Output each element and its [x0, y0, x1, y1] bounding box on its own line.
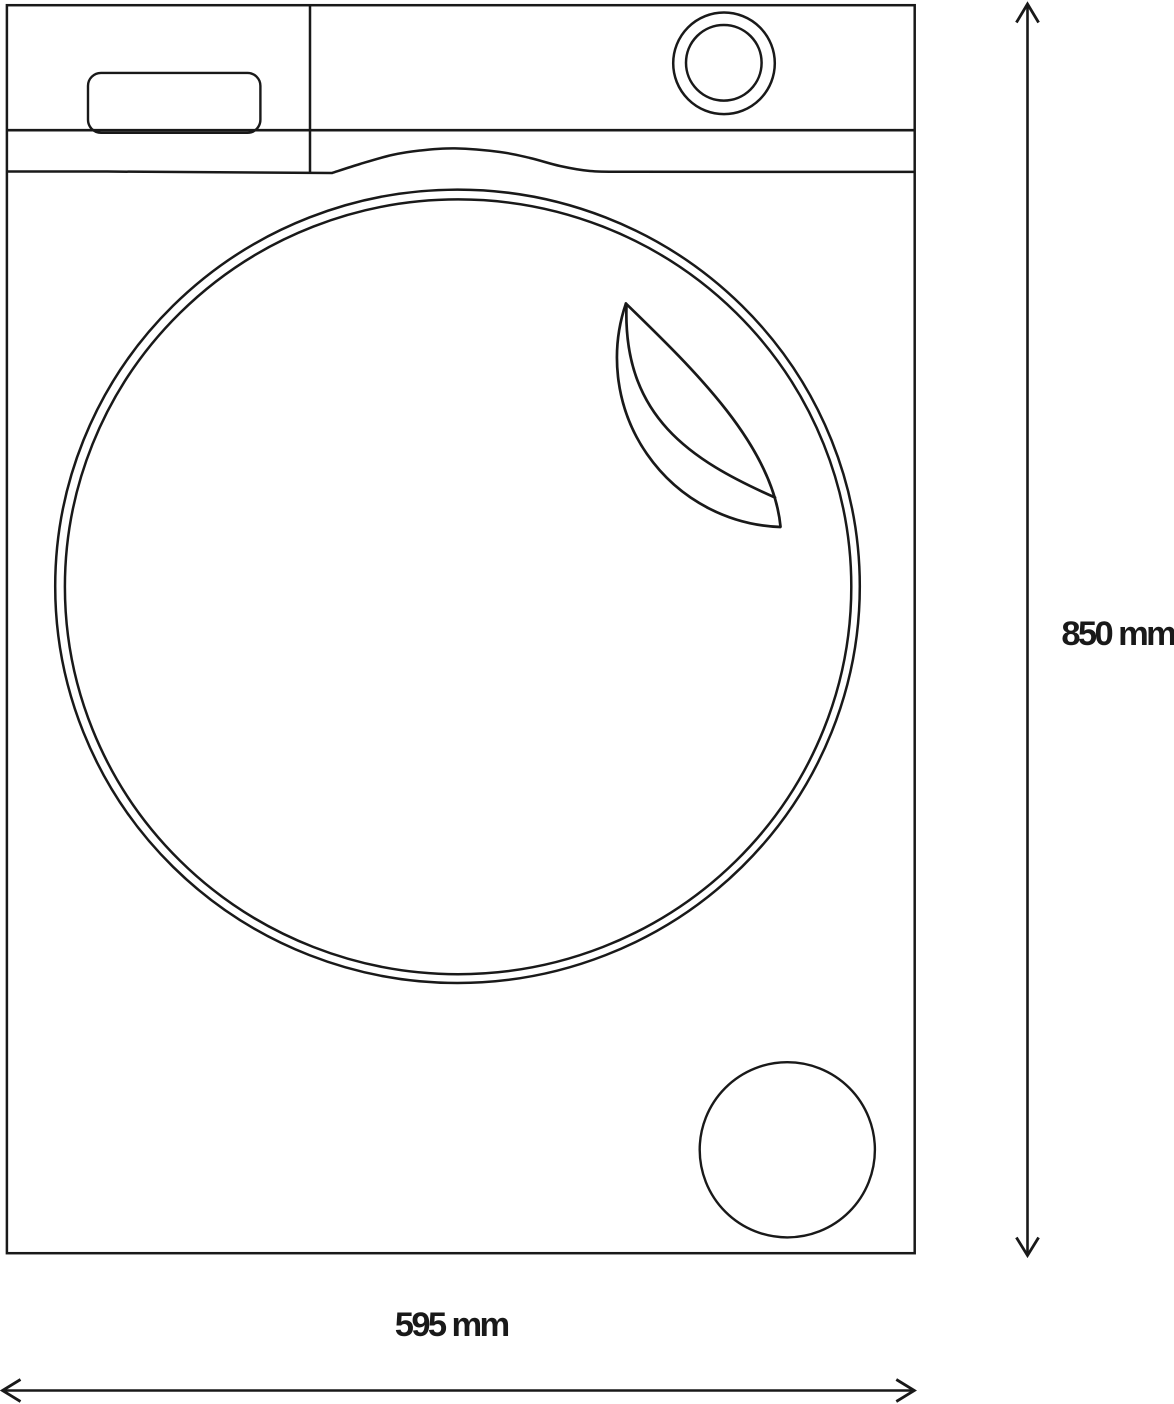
svg-text:595 mm: 595 mm	[395, 1306, 509, 1344]
svg-text:850 mm: 850 mm	[1061, 615, 1174, 653]
